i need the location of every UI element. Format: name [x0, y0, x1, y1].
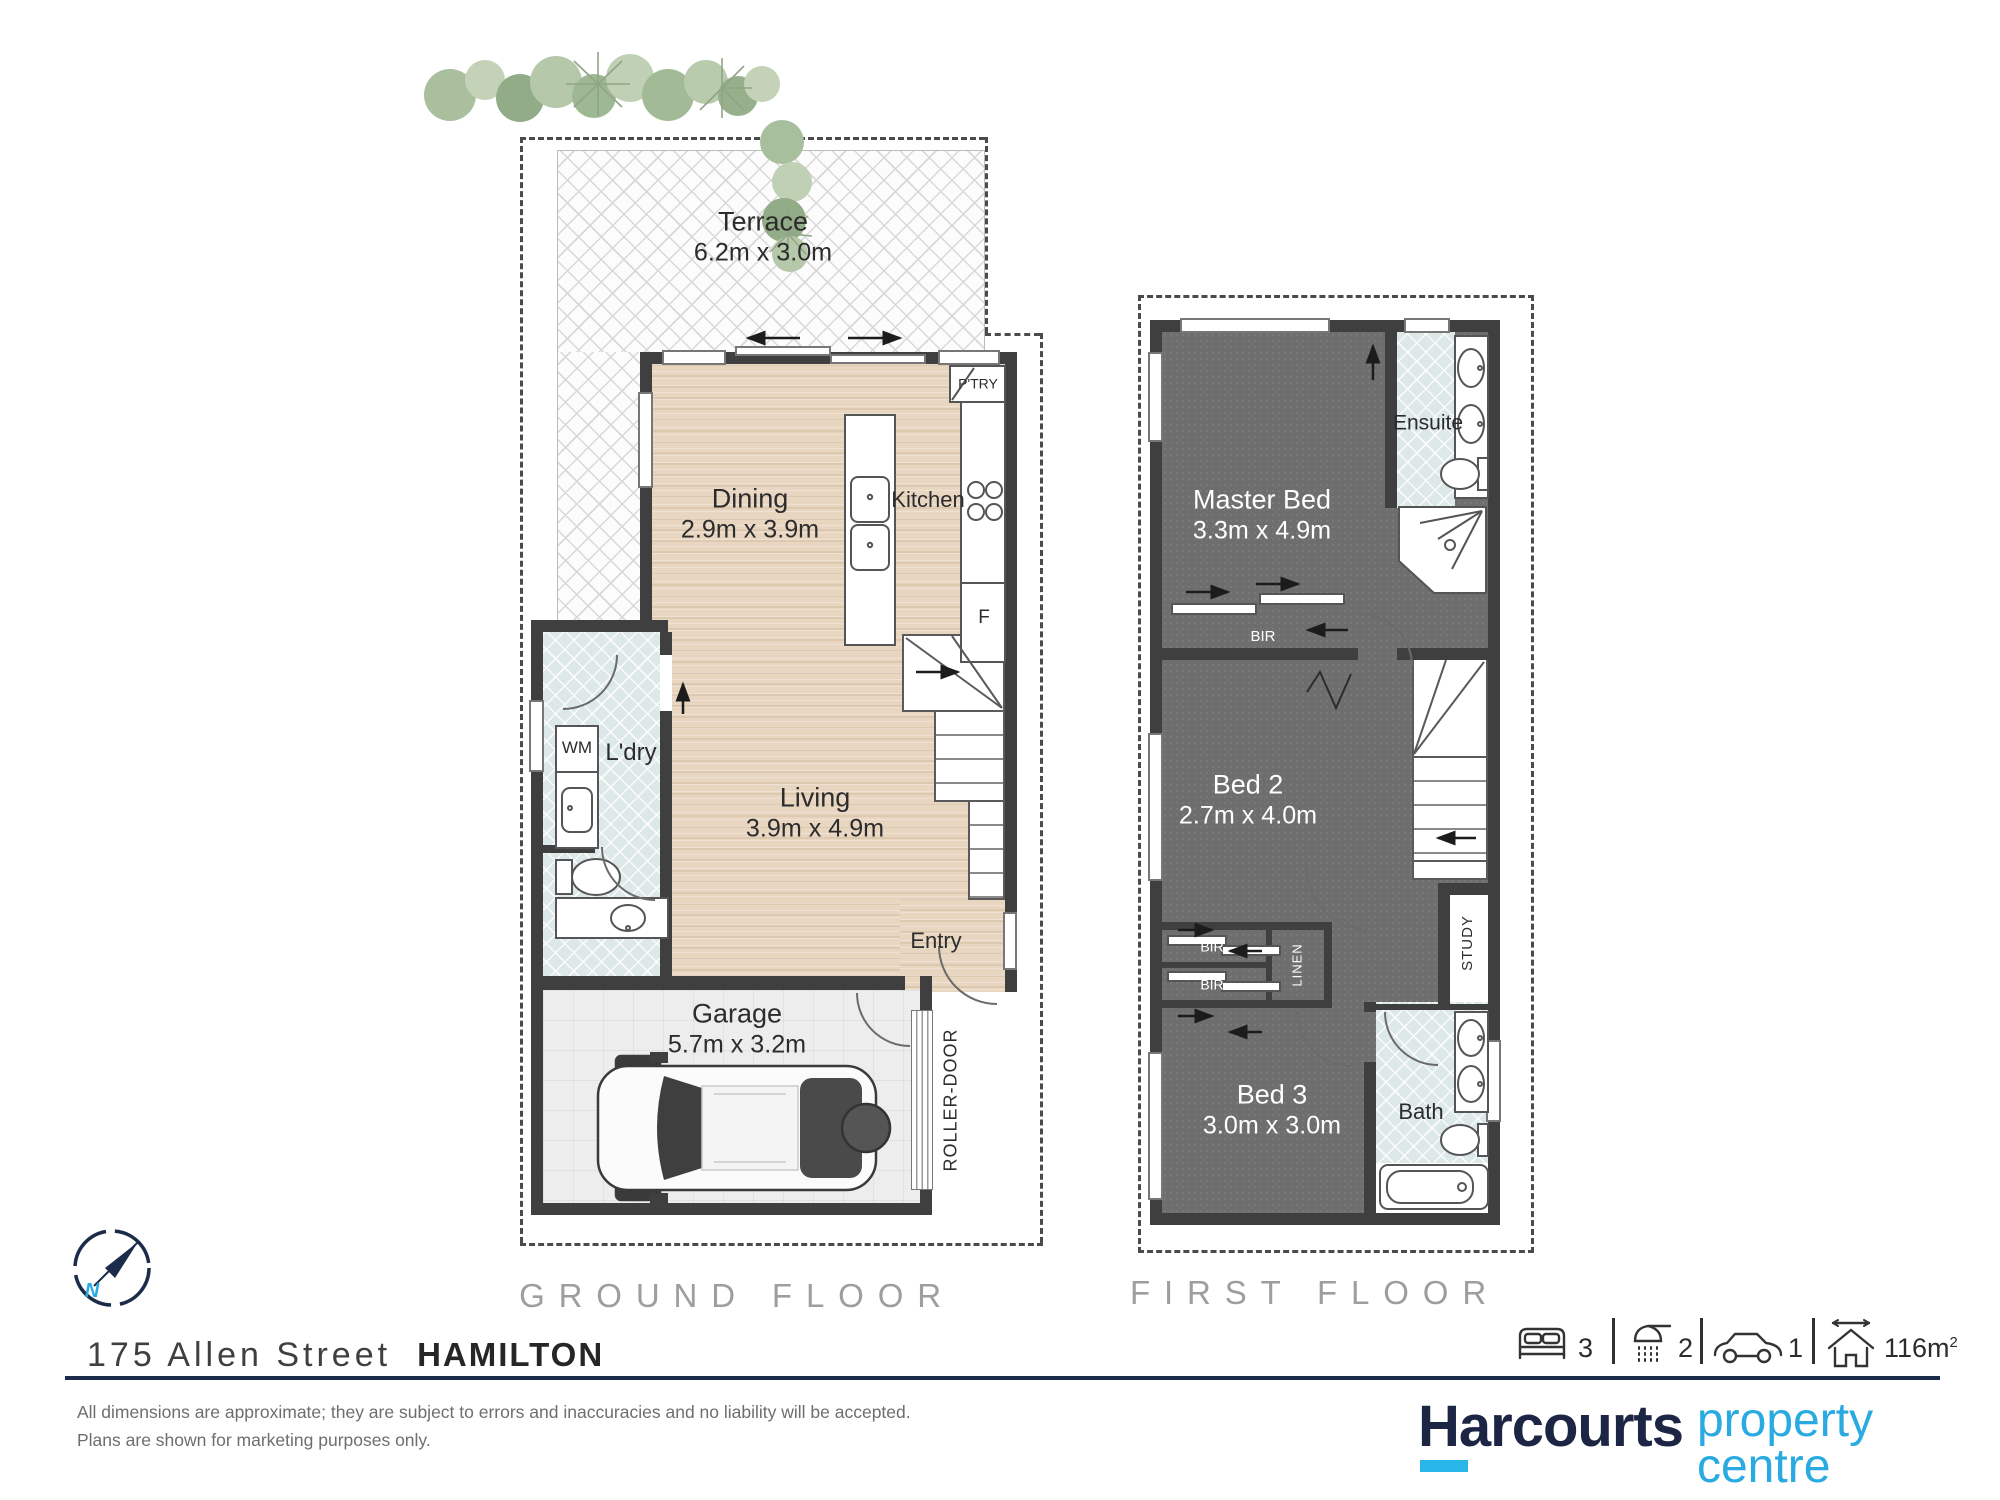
room-laundry-floor [543, 632, 660, 978]
car-icon [1712, 1326, 1784, 1371]
room-label-wm: WM [562, 738, 592, 758]
floorplan-page: Terrace 6.2m x 3.0m Dining 2.9m x 3.9m K… [0, 0, 2000, 1500]
window [662, 350, 726, 365]
car-count: 1 [1788, 1333, 1803, 1364]
room-label-bir-master: BIR [1250, 628, 1275, 646]
courtyard-strip [557, 352, 641, 622]
window [1180, 318, 1330, 333]
compass-north-label: N [85, 1280, 99, 1304]
room-label-kitchen: Kitchen [891, 487, 964, 513]
wall [531, 620, 543, 990]
brand-logo: Harcourts property centre [1418, 1398, 1873, 1489]
brand-name: Harcourts [1418, 1394, 1683, 1459]
door-opening [660, 655, 672, 711]
ground-boundary-right-upper [985, 137, 988, 333]
wall [1162, 922, 1332, 930]
stairs-first-winder [1412, 658, 1488, 758]
wall [531, 1203, 932, 1215]
room-label-dining: Dining 2.9m x 3.9m [681, 483, 819, 544]
room-label-study: STUDY [1459, 915, 1477, 971]
room-label-terrace: Terrace 6.2m x 3.0m [694, 206, 832, 267]
wall [1162, 648, 1358, 660]
wall [920, 1188, 932, 1215]
stairs-ground-run [934, 710, 1005, 802]
window [638, 392, 653, 488]
room-label-master: Master Bed 3.3m x 4.9m [1193, 484, 1331, 545]
room-label-garage: Garage 5.7m x 3.2m [668, 998, 806, 1059]
summary-separator [1812, 1318, 1815, 1364]
wall [1376, 1004, 1488, 1010]
window [1148, 733, 1163, 881]
wall [1364, 1062, 1376, 1213]
room-label-pantry: P'TRY [958, 376, 998, 393]
room-bath-floor [1376, 1002, 1488, 1165]
wall [1438, 883, 1500, 895]
wall [531, 990, 543, 1215]
window [1148, 352, 1163, 442]
room-label-bath: Bath [1398, 1099, 1443, 1125]
wall [1162, 1000, 1332, 1008]
wall [1150, 1213, 1500, 1225]
wall [531, 620, 668, 632]
sliding-door-panel [735, 346, 831, 356]
wall [531, 976, 905, 990]
address-street: 175 Allen Street [87, 1336, 391, 1375]
ground-boundary-top [520, 137, 985, 140]
room-label-entry: Entry [910, 928, 961, 954]
brand-tag1: property [1697, 1398, 1873, 1444]
sliding-door-panel [830, 354, 926, 364]
area-value: 116m2 [1884, 1333, 1958, 1364]
room-label-bir-a: BIR [1200, 939, 1223, 956]
shower-icon [1626, 1320, 1674, 1371]
window [1486, 1040, 1501, 1122]
tub-zone [1376, 1163, 1488, 1213]
ground-boundary-bottom [520, 1243, 1043, 1246]
address-suburb: HAMILTON [417, 1336, 604, 1374]
room-label-laundry: L'dry [605, 739, 656, 767]
wall [1438, 890, 1450, 1010]
stairs-ground-winder [902, 634, 1005, 712]
stairs-ground-lower [968, 800, 1005, 900]
roller-door [911, 1010, 933, 1190]
shower-zone [1397, 505, 1488, 595]
ground-boundary-left [520, 137, 523, 1243]
disclaimer-line2: Plans are shown for marketing purposes o… [77, 1430, 431, 1451]
wall [920, 976, 932, 1012]
wall [1266, 928, 1272, 1004]
first-floor-caption: FIRST FLOOR [1130, 1274, 1500, 1312]
window [938, 350, 1000, 365]
room-label-roller-door: ROLLER-DOOR [940, 1028, 961, 1171]
room-label-bed3: Bed 3 3.0m x 3.0m [1203, 1079, 1341, 1140]
room-label-living: Living 3.9m x 4.9m [746, 782, 884, 843]
divider-rule [65, 1376, 1940, 1380]
wall [1005, 968, 1017, 992]
disclaimer-line1: All dimensions are approximate; they are… [77, 1402, 911, 1423]
stairs-first-landing [1412, 860, 1488, 880]
brand-underline [1420, 1460, 1468, 1472]
brand-tag2: centre [1697, 1444, 1873, 1490]
wall [1397, 648, 1500, 660]
room-label-bir-b: BIR [1200, 977, 1223, 994]
ground-floor-caption: GROUND FLOOR [519, 1277, 955, 1315]
front-door [1003, 912, 1017, 970]
ground-boundary-step [985, 333, 1040, 336]
room-label-bed2: Bed 2 2.7m x 4.0m [1179, 769, 1317, 830]
wall [1005, 352, 1017, 912]
wall [543, 845, 595, 853]
house-area-icon [1826, 1318, 1876, 1375]
window [1404, 318, 1450, 333]
stairs-first-run [1412, 756, 1488, 862]
shower-count: 2 [1678, 1333, 1693, 1364]
wall [1162, 962, 1270, 968]
ground-boundary-right [1040, 333, 1043, 1243]
bed-count: 3 [1578, 1333, 1593, 1364]
summary-separator [1612, 1318, 1615, 1364]
summary-separator [1700, 1318, 1703, 1364]
address-row: 175 Allen Street HAMILTON [87, 1336, 604, 1375]
window [1148, 1052, 1163, 1200]
room-label-linen: LINEN [1289, 943, 1304, 986]
room-label-ensuite: Ensuite [1393, 412, 1463, 437]
wall [1364, 1002, 1376, 1012]
bed-icon [1516, 1324, 1568, 1367]
wall [1324, 922, 1332, 1008]
window [529, 700, 544, 772]
room-label-fridge: F [978, 607, 990, 629]
